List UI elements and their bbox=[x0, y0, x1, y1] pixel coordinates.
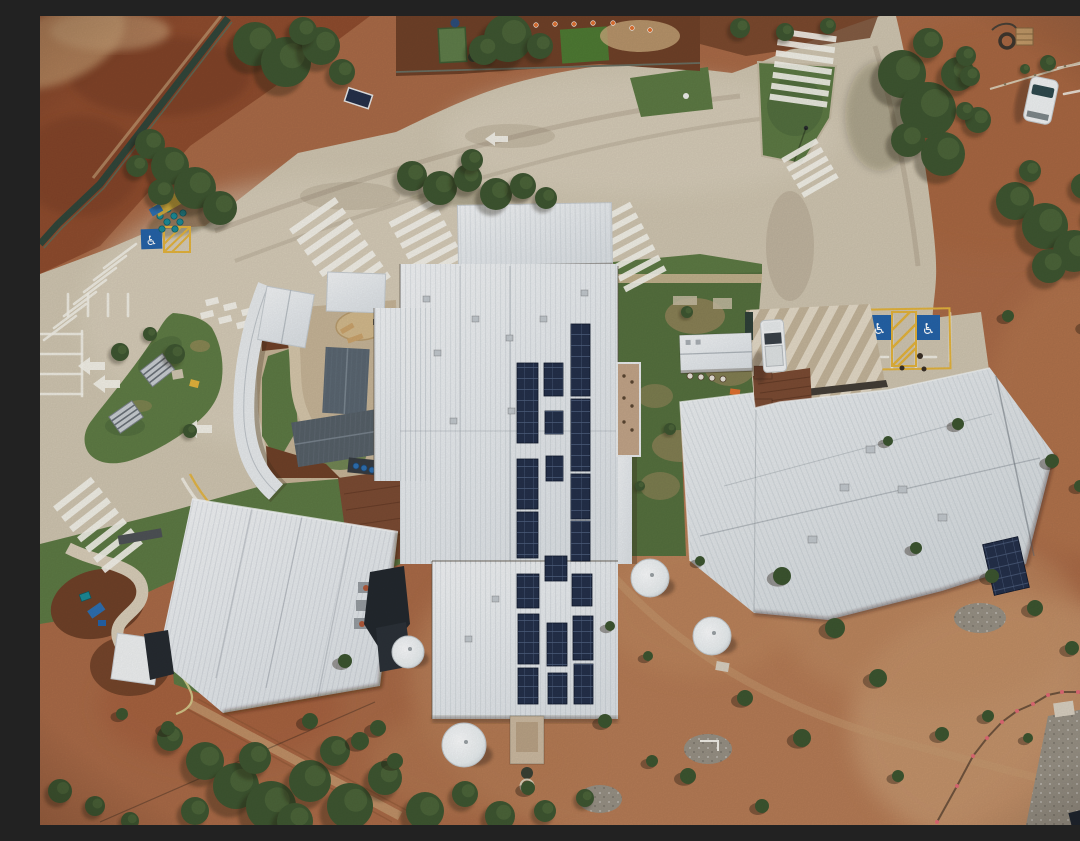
aerial-photo: ♿ ♿ ♿ bbox=[40, 16, 1080, 825]
aerial-photo-canvas: ♿ ♿ ♿ bbox=[40, 16, 1080, 825]
vignette bbox=[40, 16, 1080, 825]
